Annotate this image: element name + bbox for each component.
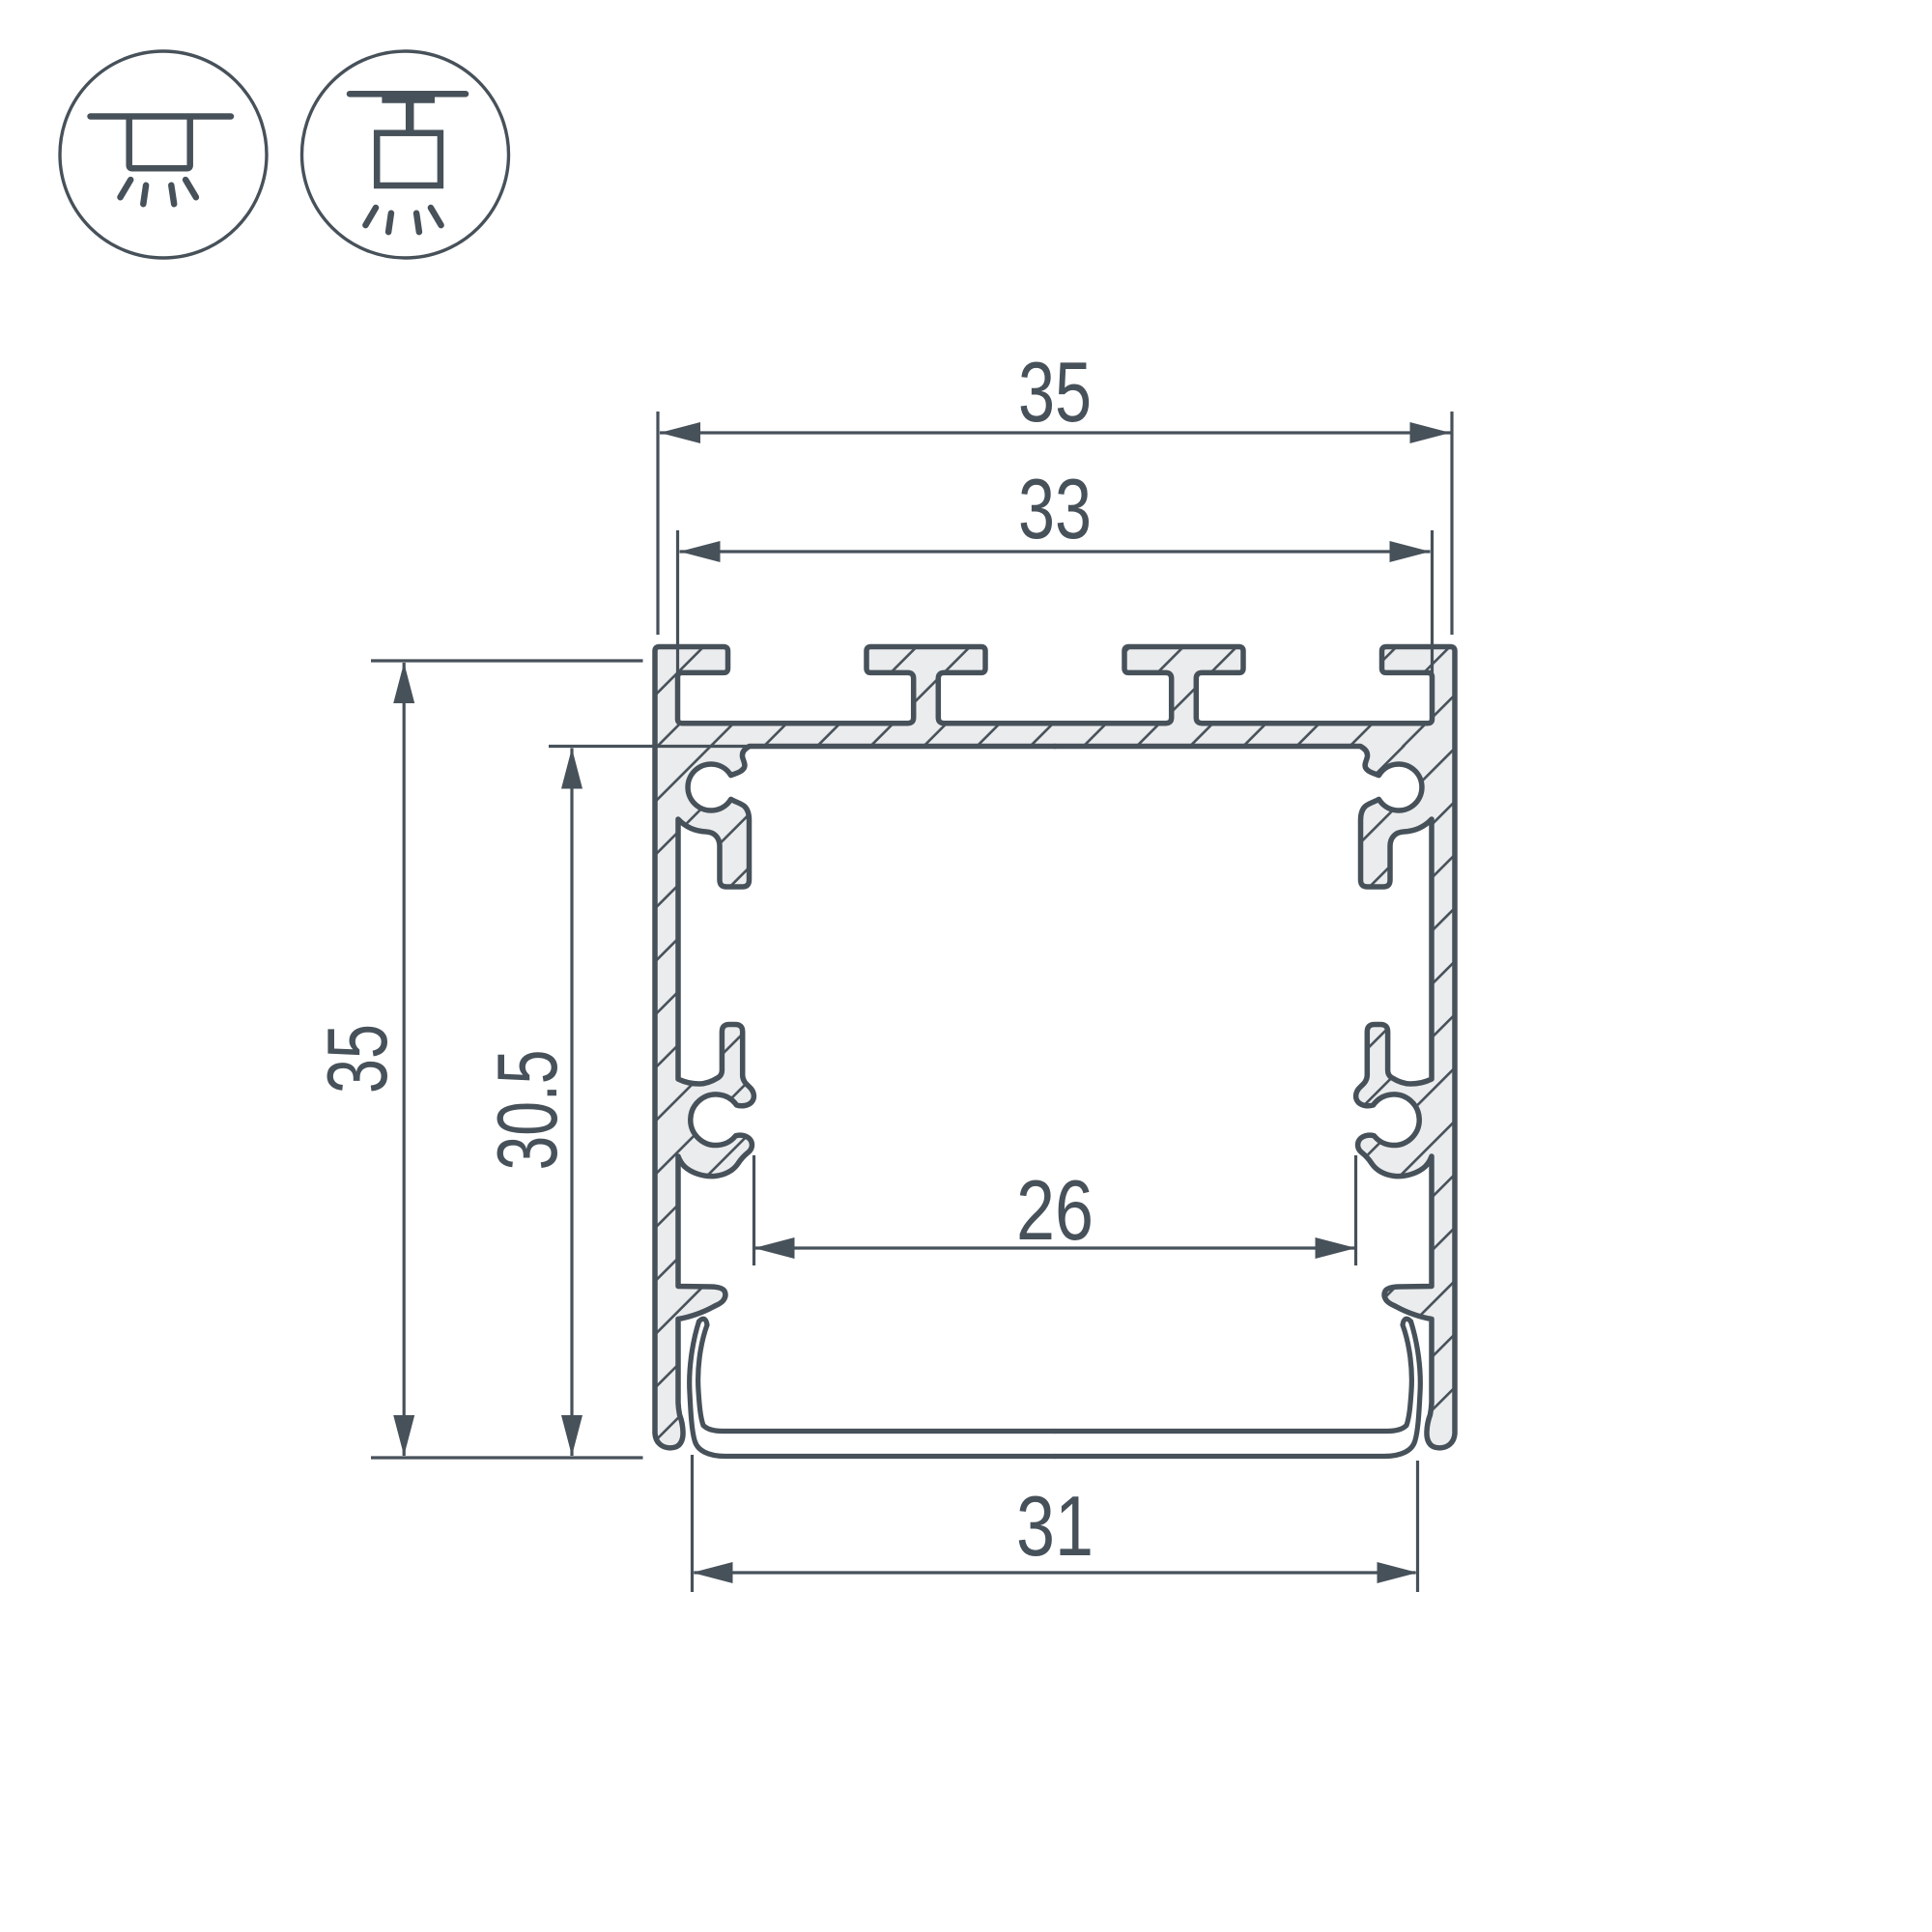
svg-text:35: 35 — [1018, 344, 1092, 440]
svg-text:26: 26 — [1016, 1162, 1094, 1258]
svg-text:31: 31 — [1016, 1478, 1094, 1574]
svg-text:30.5: 30.5 — [479, 1050, 575, 1171]
svg-text:33: 33 — [1018, 461, 1092, 556]
svg-text:35: 35 — [309, 1024, 405, 1094]
